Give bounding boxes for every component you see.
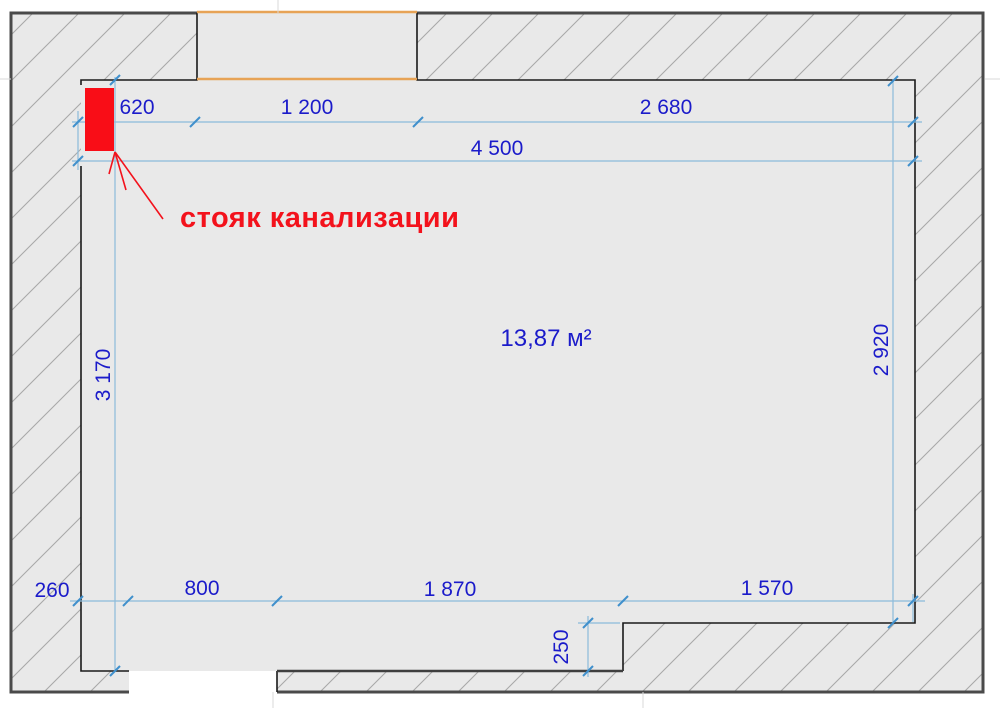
dim-top-1200: 1 200 <box>281 96 334 119</box>
floor-plan-drawing: 620 1 200 2 680 4 500 260 800 1 870 1 57… <box>0 0 1000 708</box>
dim-left-3170-group: 3 170 <box>92 349 115 402</box>
dim-right-2920-group: 2 920 <box>870 324 893 377</box>
sewer-riser-symbol <box>85 88 114 151</box>
dim-top-620: 620 <box>119 96 154 119</box>
floor-plan-page: 620 1 200 2 680 4 500 260 800 1 870 1 57… <box>0 0 1000 708</box>
riser-annotation-text: стояк канализации <box>180 202 459 234</box>
dim-bottom-1570: 1 570 <box>741 577 794 600</box>
dim-bottom-1870: 1 870 <box>424 578 477 601</box>
dim-top-total-4500: 4 500 <box>471 137 524 160</box>
dim-ledge-250: 250 <box>550 629 573 664</box>
room-area-label: 13,87 м² <box>500 325 591 352</box>
dim-bottom-260: 260 <box>34 579 69 602</box>
dim-right-2920: 2 920 <box>870 324 893 377</box>
dim-ledge-250-group: 250 <box>550 629 573 664</box>
dim-left-3170: 3 170 <box>92 349 115 402</box>
dim-bottom-800: 800 <box>184 577 219 600</box>
dim-top-2680: 2 680 <box>640 96 693 119</box>
window-opening <box>197 13 417 80</box>
